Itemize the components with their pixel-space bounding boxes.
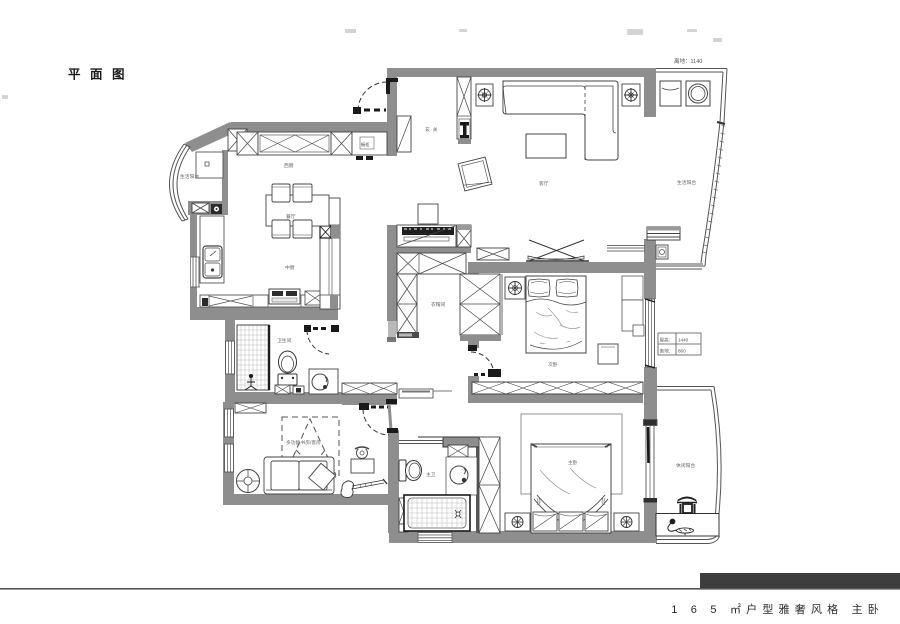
svg-text:玄关: 玄关 [425,126,441,133]
svg-text:次卧: 次卧 [548,361,558,368]
svg-text:平面图: 平面图 [68,68,134,82]
svg-text:离地：1140: 离地：1140 [674,57,702,65]
svg-text:1 6 5 ㎡户型雅奢风格 主卧: 1 6 5 ㎡户型雅奢风格 主卧 [671,602,884,616]
svg-text:屋高：: 屋高： [660,337,674,344]
svg-text:1440: 1440 [678,338,689,343]
svg-text:生活阳台: 生活阳台 [677,179,696,186]
svg-text:客厅: 客厅 [539,180,549,187]
svg-text:多功能书房/客房: 多功能书房/客房 [286,439,321,446]
svg-text:主卫: 主卫 [426,471,436,478]
svg-text:主卧: 主卧 [568,459,578,466]
svg-text:860: 860 [678,349,686,354]
svg-text:衣帽间: 衣帽间 [431,301,446,308]
svg-text:休闲阳台: 休闲阳台 [676,462,695,469]
svg-text:离地：: 离地： [660,348,674,355]
svg-text:餐厅: 餐厅 [286,213,296,220]
svg-text:卫生间: 卫生间 [277,337,292,344]
svg-text:生活阳台: 生活阳台 [180,173,199,180]
svg-text:西厨: 西厨 [284,163,294,169]
svg-text:中厨: 中厨 [285,264,295,271]
svg-text:橱柜: 橱柜 [361,141,369,148]
